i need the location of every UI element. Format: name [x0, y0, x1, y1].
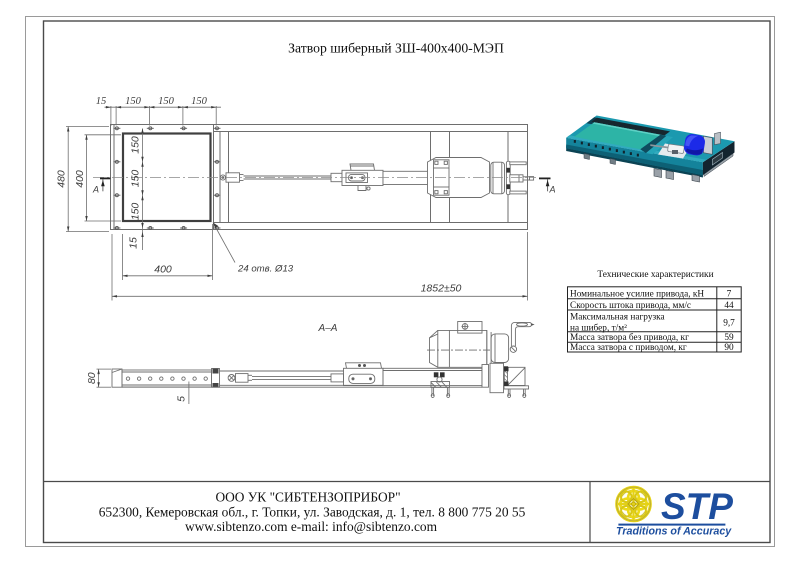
svg-text:Номинальное усилие привода, кН: Номинальное усилие привода, кН	[570, 289, 704, 299]
svg-text:Масса затвора без привода, кг: Масса затвора без привода, кг	[570, 332, 689, 343]
svg-text:80: 80	[86, 372, 98, 384]
svg-text:7: 7	[727, 289, 732, 299]
svg-text:ООО УК "СИБТЕНЗОПРИБОР": ООО УК "СИБТЕНЗОПРИБОР"	[215, 490, 400, 505]
svg-text:9,7: 9,7	[723, 319, 735, 329]
svg-text:Затвор шиберный ЗШ-400х400-МЭП: Затвор шиберный ЗШ-400х400-МЭП	[288, 41, 504, 56]
svg-text:1852±50: 1852±50	[421, 283, 462, 295]
svg-text:400: 400	[74, 170, 86, 188]
svg-text:480: 480	[56, 170, 68, 188]
svg-text:Скорость штока привода, мм/с: Скорость штока привода, мм/с	[570, 301, 691, 311]
svg-text:Traditions of Accuracy: Traditions of Accuracy	[616, 525, 732, 537]
svg-text:150: 150	[158, 96, 175, 107]
svg-text:на шибер, т/м²: на шибер, т/м²	[570, 322, 627, 333]
svg-text:А: А	[548, 185, 555, 195]
svg-text:150: 150	[125, 96, 142, 107]
svg-text:www.sibtenzo.com e-mail: info@: www.sibtenzo.com e-mail: info@sibtenzo.c…	[185, 519, 438, 534]
svg-text:STP: STP	[661, 486, 733, 527]
svg-text:150: 150	[130, 136, 142, 154]
svg-text:90: 90	[724, 343, 734, 353]
svg-text:24 отв. Ø13: 24 отв. Ø13	[237, 264, 294, 275]
svg-text:150: 150	[130, 203, 142, 221]
svg-text:15: 15	[96, 96, 107, 107]
svg-text:Технические характеристики: Технические характеристики	[597, 270, 713, 280]
svg-text:400: 400	[154, 264, 172, 276]
svg-text:15: 15	[128, 237, 140, 249]
svg-text:5: 5	[176, 396, 188, 402]
svg-text:652300, Кемеровская обл., г. Т: 652300, Кемеровская обл., г. Топки, ул. …	[99, 505, 526, 520]
svg-text:А–А: А–А	[318, 323, 338, 334]
svg-text:59: 59	[724, 333, 734, 343]
svg-text:44: 44	[724, 301, 734, 311]
svg-text:Масса затвора с приводом, кг: Масса затвора с приводом, кг	[570, 343, 687, 353]
svg-text:150: 150	[130, 170, 142, 188]
svg-text:150: 150	[191, 96, 208, 107]
svg-text:А: А	[92, 185, 99, 195]
svg-text:Максимальная нагрузка: Максимальная нагрузка	[570, 313, 665, 323]
